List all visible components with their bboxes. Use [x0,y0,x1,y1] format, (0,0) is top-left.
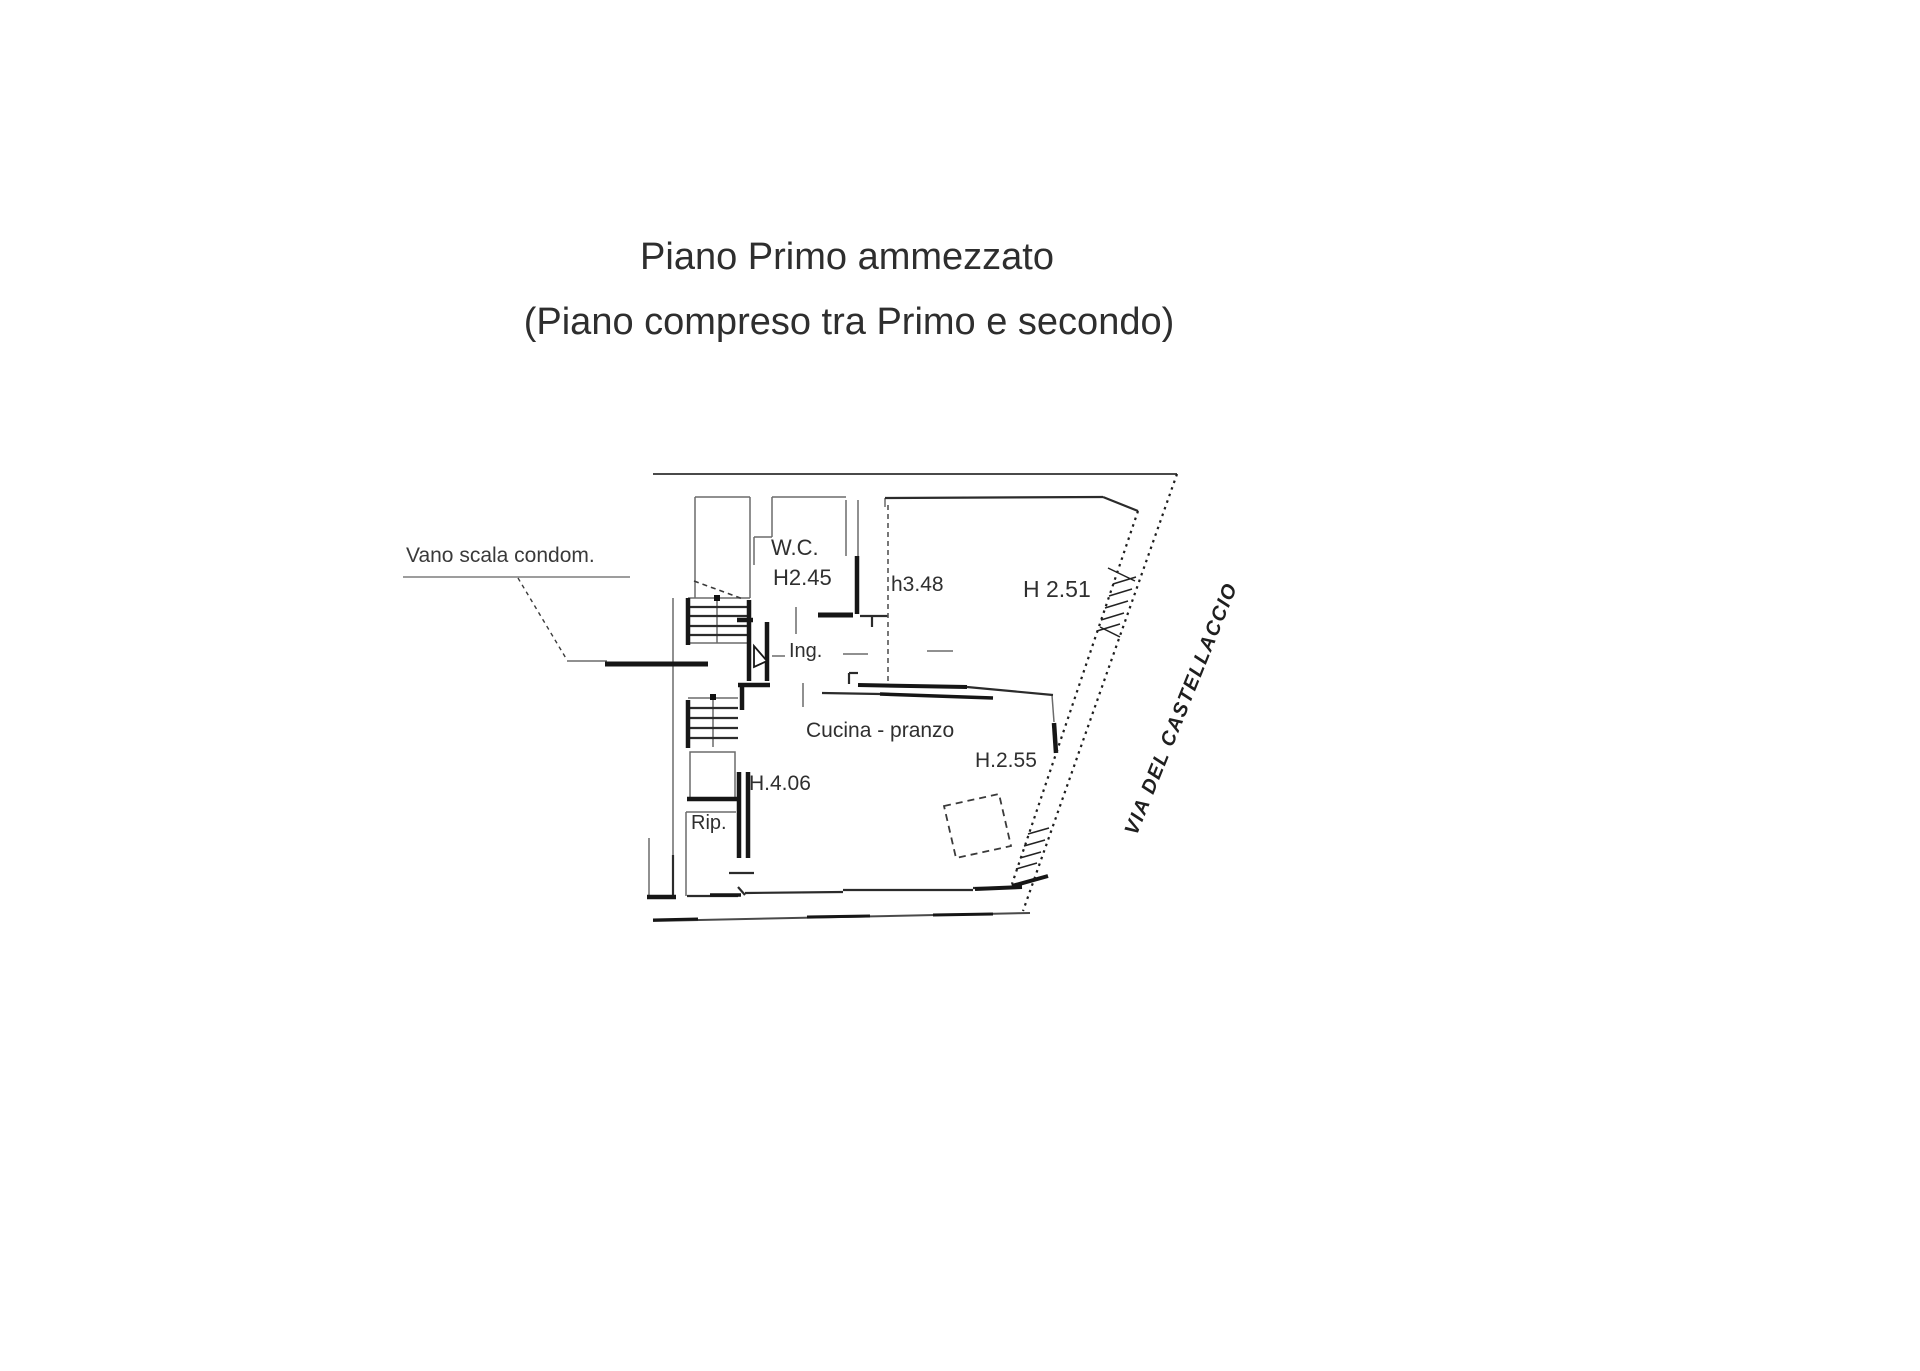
height-label-wc: H2.45 [773,566,832,589]
stair-section-marker [710,694,716,700]
window-hatch-lower [1016,828,1049,869]
room-label-entrance: Ing. [789,641,822,662]
scanned-floorplan-page: Piano Primo ammezzato (Piano compreso tr… [0,0,1920,1371]
room-label-storage: Rip. [691,813,727,834]
room-label-wc: W.C. [771,536,819,559]
height-label-kitchen: H.2.55 [975,750,1037,772]
height-label-right-room: H 2.51 [1023,577,1091,601]
room-label-kitchen: Cucina - pranzo [806,720,954,742]
height-label-stairwell: H.4.06 [749,773,811,795]
furniture-outline [944,794,1011,858]
window-hatch-upper [1097,568,1136,637]
height-label-mid-zone: h3.48 [891,574,944,596]
floorplan-drawing [0,0,1920,1371]
leader-dashed-line [518,578,567,660]
stair-section-marker [714,595,720,601]
annotation-vano-scala: Vano scala condom. [406,545,595,567]
